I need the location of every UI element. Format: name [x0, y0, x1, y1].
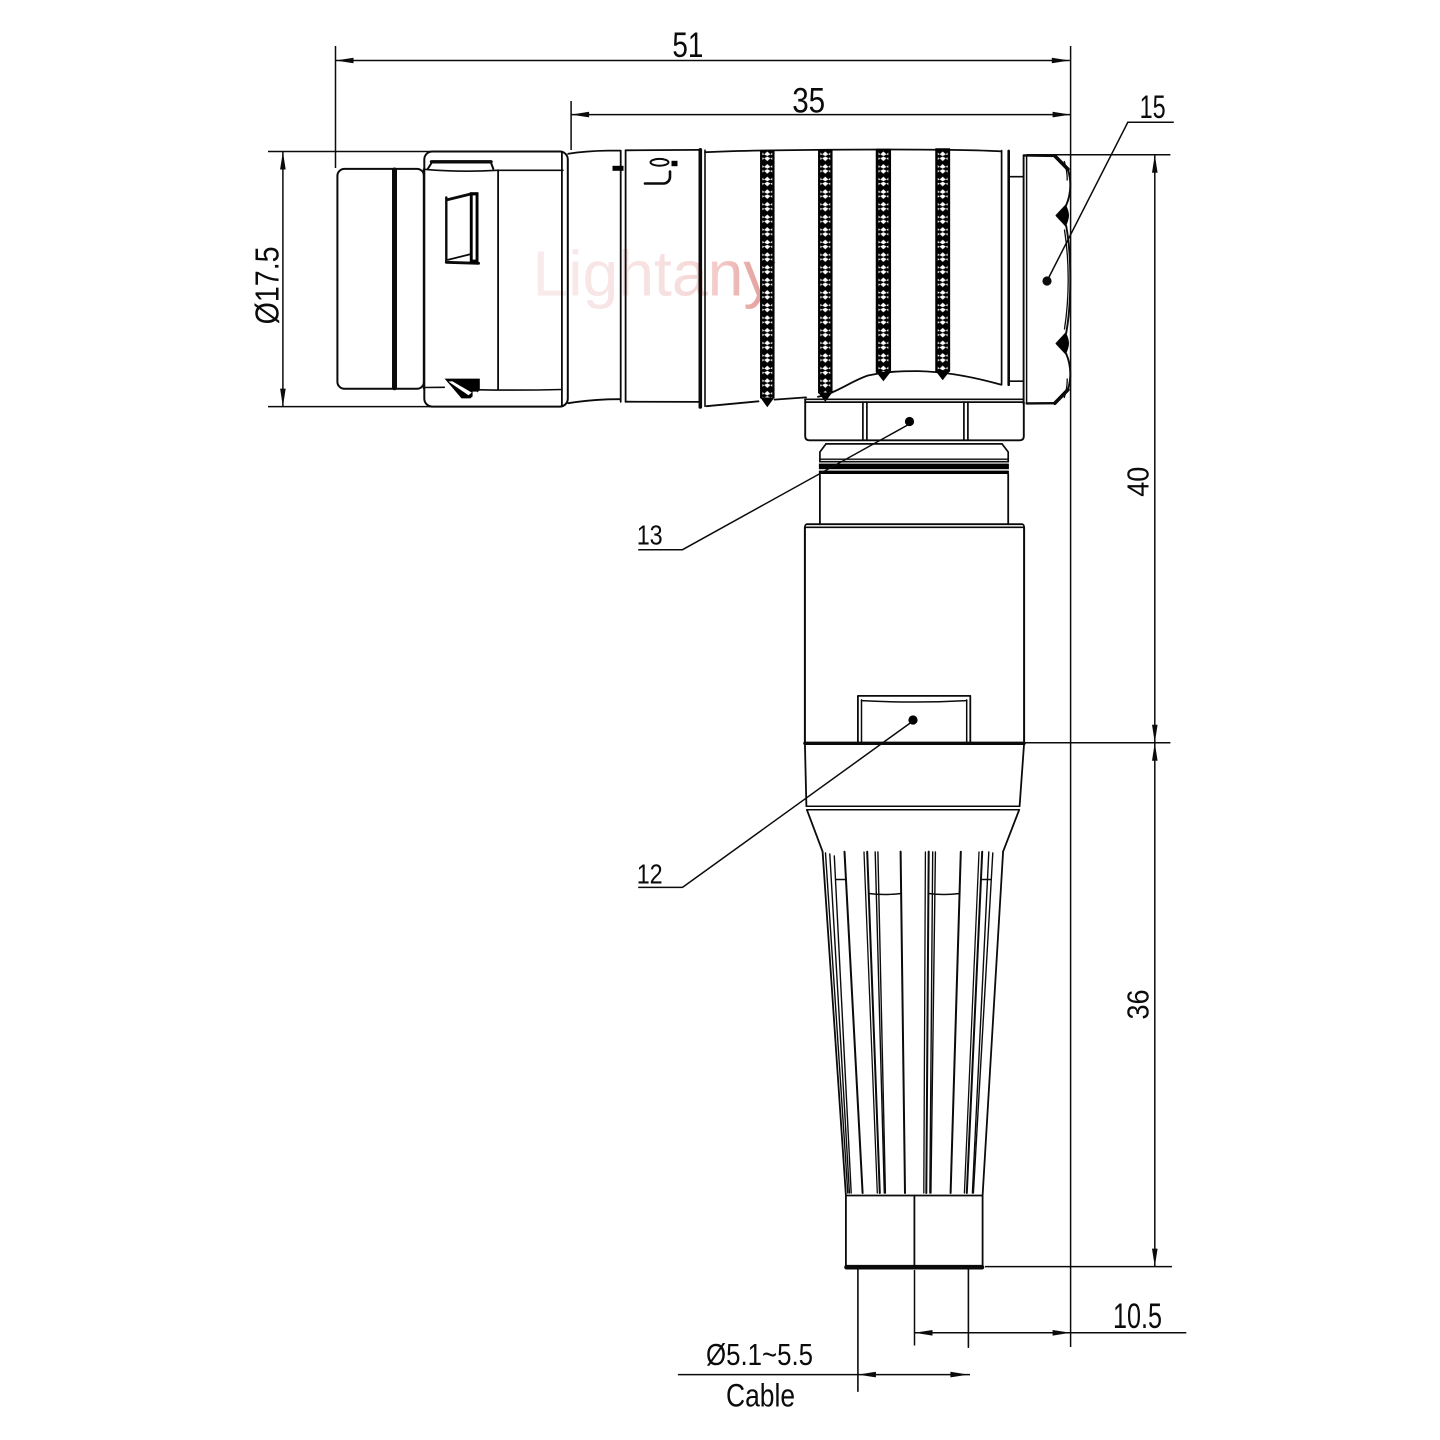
svg-text:13: 13: [637, 520, 663, 551]
svg-text:Lightany: Lightany: [533, 238, 776, 310]
svg-text:35: 35: [792, 82, 825, 121]
svg-text:10.5: 10.5: [1113, 1297, 1162, 1336]
svg-text:Ø17.5: Ø17.5: [249, 246, 286, 324]
svg-text:15: 15: [1140, 89, 1166, 125]
svg-text:40: 40: [1121, 467, 1156, 497]
svg-text:51: 51: [672, 26, 703, 65]
svg-text:36: 36: [1121, 990, 1156, 1020]
svg-text:12: 12: [637, 859, 663, 890]
svg-text:Cable: Cable: [726, 1378, 795, 1414]
svg-text:Ø5.1~5.5: Ø5.1~5.5: [706, 1337, 813, 1372]
